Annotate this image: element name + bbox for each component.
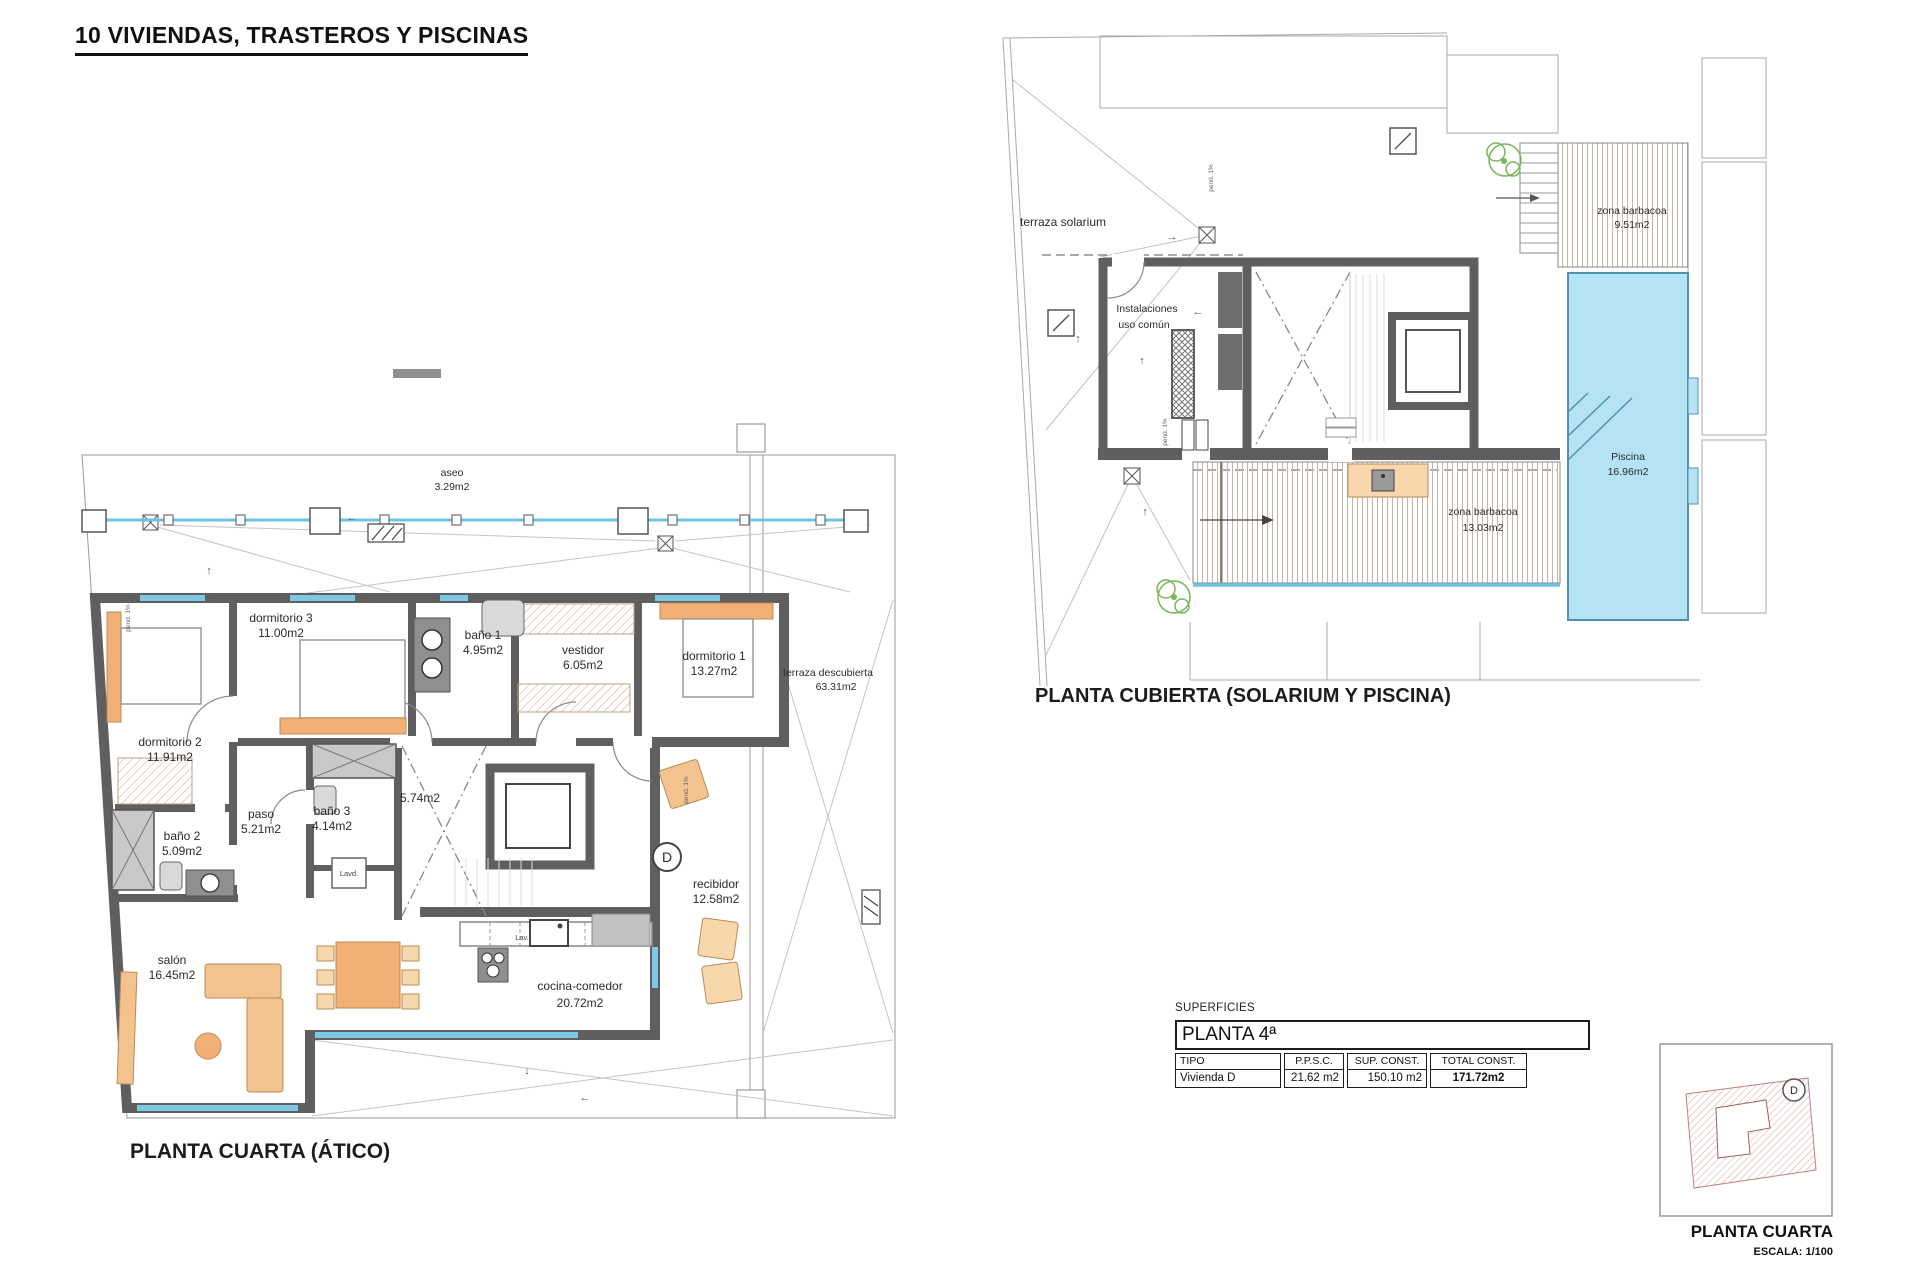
keyplan-scale: ESCALA: 1/100 (1640, 1246, 1833, 1258)
svg-text:13.27m2: 13.27m2 (691, 664, 738, 678)
down-arrow-icon: ↓ (524, 1065, 530, 1077)
sheet-title: 10 VIVIENDAS, TRASTEROS Y PISCINAS (75, 22, 528, 56)
keyplan-unit-badge: D (1783, 1079, 1805, 1101)
label-recibidor: recibidor (693, 877, 739, 891)
left-arrow-icon: ← (580, 1092, 591, 1104)
label-barbacoa-norte: zona barbacoa (1597, 205, 1667, 217)
svg-text:5.21m2: 5.21m2 (241, 822, 281, 836)
cell-sup-const: 150.10 m2 (1348, 1070, 1426, 1087)
svg-text:4.14m2: 4.14m2 (312, 819, 352, 833)
svg-text:16.96m2: 16.96m2 (1608, 466, 1649, 478)
svg-text:12.58m2: 12.58m2 (693, 892, 740, 906)
svg-text:pend. 1%: pend. 1% (125, 604, 132, 632)
cell-vivienda: Vivienda D (1176, 1070, 1280, 1087)
svg-text:13.03m2: 13.03m2 (1463, 522, 1504, 534)
label-hueco: 5.74m2 (400, 791, 440, 805)
col-ppsc: P.P.S.C. 21.62 m2 (1284, 1053, 1344, 1088)
label-bano2: baño 2 (164, 829, 201, 843)
svg-text:4.95m2: 4.95m2 (463, 643, 503, 657)
up-arrow-icon: ↑ (1142, 506, 1148, 518)
key-plan: D (1658, 1042, 1834, 1218)
svg-text:11.00m2: 11.00m2 (258, 626, 304, 640)
cell-ppsc: 21.62 m2 (1285, 1070, 1343, 1087)
label-bano3: baño 3 (314, 804, 351, 818)
surfaces-table: SUPERFICIES PLANTA 4ª TIPO Vivienda D P.… (1175, 1002, 1590, 1088)
svg-text:D: D (662, 849, 672, 865)
caption-planta-cubierta: PLANTA CUBIERTA (SOLARIUM Y PISCINA) (1035, 685, 1451, 708)
label-dormitorio2: dormitorio 2 (138, 735, 202, 749)
svg-text:20.72m2: 20.72m2 (557, 996, 604, 1010)
up-arrow-icon: ↑ (1139, 355, 1145, 367)
svg-text:16.45m2: 16.45m2 (149, 968, 196, 982)
svg-text:uso común: uso común (1118, 319, 1170, 331)
unit-letter-badge: D (653, 843, 681, 871)
label-vestidor: vestidor (562, 643, 604, 657)
svg-text:5.09m2: 5.09m2 (162, 844, 202, 858)
left-arrow-icon: ← (1193, 306, 1204, 318)
roof-core (1247, 262, 1474, 462)
label-dormitorio1: dormitorio 1 (682, 649, 746, 663)
svg-text:pend. 1%: pend. 1% (1162, 418, 1169, 446)
surfaces-table-row: TIPO Vivienda D P.P.S.C. 21.62 m2 SUP. C… (1175, 1053, 1590, 1088)
up-arrow-icon: ↑ (1075, 333, 1081, 345)
label-dormitorio3: dormitorio 3 (249, 611, 313, 625)
label-lav: Lav. (515, 933, 529, 942)
label-solarium: terraza solarium (1020, 215, 1106, 229)
label-lavd: Lavd. (340, 869, 358, 878)
col-tipo: TIPO Vivienda D (1175, 1053, 1281, 1088)
svg-text:D: D (1790, 1085, 1798, 1097)
label-cocina: cocina-comedor (537, 979, 622, 993)
svg-text:9.51m2: 9.51m2 (1614, 219, 1649, 231)
surfaces-table-label: SUPERFICIES (1175, 1002, 1590, 1014)
label-aseo: aseo (441, 467, 464, 479)
col-total-const: TOTAL CONST. 171.72m2 (1430, 1053, 1527, 1088)
svg-text:pend. 1%: pend. 1% (683, 776, 690, 804)
pool (1568, 273, 1698, 620)
barbecue-counter (1348, 464, 1428, 497)
label-barbacoa-sur: zona barbacoa (1448, 506, 1518, 518)
cell-total-const: 171.72m2 (1431, 1070, 1526, 1087)
svg-text:3.29m2: 3.29m2 (434, 481, 469, 493)
svg-text:11.91m2: 11.91m2 (147, 750, 193, 764)
left-arrow-icon: ← (347, 512, 358, 524)
label-piscina: Piscina (1611, 451, 1645, 463)
drawing-sheet: 10 VIVIENDAS, TRASTEROS Y PISCINAS (0, 0, 1920, 1280)
label-terraza: terraza descubierta (783, 667, 873, 679)
svg-text:63.31m2: 63.31m2 (816, 681, 857, 693)
svg-text:6.05m2: 6.05m2 (563, 658, 603, 672)
label-bano1: baño 1 (465, 628, 502, 642)
col-sup-const: SUP. CONST. 150.10 m2 (1347, 1053, 1427, 1088)
caption-planta-cuarta: PLANTA CUARTA (ÁTICO) (130, 1140, 390, 1164)
label-paso: paso (248, 807, 274, 821)
label-salon: salón (158, 953, 187, 967)
label-instalaciones: Instalaciones (1116, 303, 1177, 315)
floor-plan-atico: D aseo 3.29m2 dormitorio 3 11.00m2 baño … (60, 360, 940, 1180)
svg-text:pend. 1%: pend. 1% (1208, 164, 1215, 192)
keyplan-caption: PLANTA CUARTA (1640, 1222, 1833, 1242)
roof-plan-cubierta: terraza solarium Instalaciones uso común… (990, 20, 1780, 720)
up-arrow-icon: ↑ (206, 565, 212, 577)
right-arrow-icon: → (1167, 231, 1178, 243)
surfaces-table-header: PLANTA 4ª (1175, 1020, 1590, 1050)
